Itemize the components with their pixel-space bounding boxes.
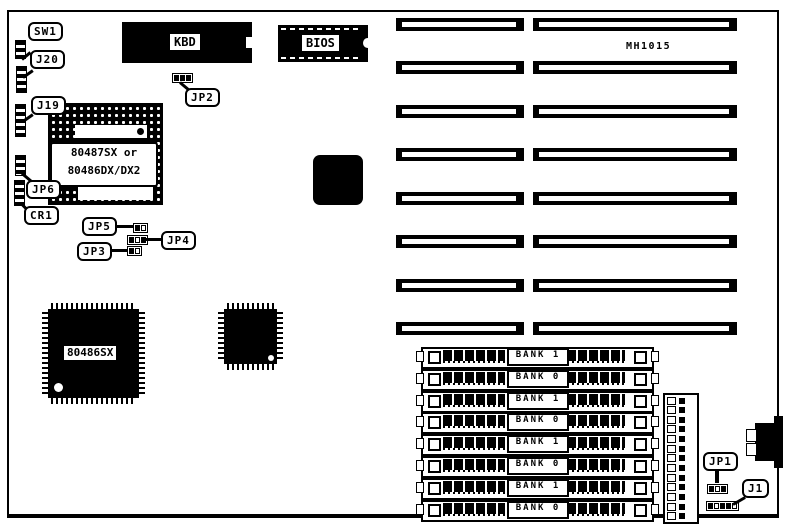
label-j19: J19 xyxy=(31,96,66,115)
pin-hole xyxy=(667,454,676,462)
pin xyxy=(679,513,685,519)
power-tab-1 xyxy=(746,429,757,442)
pin-hole xyxy=(667,445,676,453)
simm-chips-left xyxy=(443,459,505,470)
pin-hole xyxy=(667,483,676,491)
chipset-qfp-chip xyxy=(218,303,283,370)
bios-chip: BIOS xyxy=(278,25,368,62)
simm-bank-label: BANK 0 xyxy=(507,370,569,388)
isa-slot xyxy=(396,148,524,161)
simm-clip-right xyxy=(634,373,647,386)
pin-header-row xyxy=(667,397,695,404)
simm-chips-left xyxy=(443,394,505,405)
bios-pin-row-bottom xyxy=(281,57,362,59)
isa-slot xyxy=(396,322,524,335)
simm-tab-left xyxy=(416,351,424,362)
simm-socket: BANK 1 xyxy=(421,347,654,369)
pin-header-row xyxy=(667,416,695,423)
pin-header-row xyxy=(667,465,695,472)
pin xyxy=(679,426,685,432)
bios-pin-row-top xyxy=(281,28,362,30)
jp1-pointer xyxy=(715,469,719,483)
isa-slot xyxy=(533,148,737,161)
simm-clip-left xyxy=(428,482,441,495)
label-jp4: JP4 xyxy=(161,231,196,250)
simm-clip-left xyxy=(428,416,441,429)
isa-slot xyxy=(533,235,737,248)
simm-chips-right xyxy=(567,415,625,426)
isa-slot-opening xyxy=(402,65,516,70)
simm-clip-right xyxy=(634,482,647,495)
pin-hole xyxy=(667,512,676,520)
isa-slot-column-left xyxy=(396,0,524,345)
plcc-chip xyxy=(313,155,363,205)
pin-hole xyxy=(667,435,676,443)
simm-bank-label: BANK 1 xyxy=(507,435,569,453)
simm-clip-right xyxy=(634,504,647,517)
feature-pin-header xyxy=(663,393,699,524)
simm-chips-left xyxy=(443,350,505,361)
power-connector-flange xyxy=(774,416,783,468)
isa-slot-opening xyxy=(539,196,729,201)
bios-chip-notch xyxy=(363,38,372,48)
simm-tab-right xyxy=(651,416,659,427)
isa-slot-opening xyxy=(402,22,516,27)
simm-bank-label: BANK 1 xyxy=(507,479,569,497)
socket-label-line1: 80487SX or xyxy=(52,144,156,162)
simm-clip-left xyxy=(428,438,441,451)
simm-bank-label: BANK 0 xyxy=(507,457,569,475)
label-j20: J20 xyxy=(30,50,65,69)
simm-tab-right xyxy=(651,373,659,384)
kbd-chip-notch xyxy=(246,37,252,48)
isa-slot xyxy=(396,192,524,205)
isa-slot-opening xyxy=(402,283,516,288)
pin xyxy=(679,475,685,481)
kbd-chip-label: KBD xyxy=(170,34,200,50)
simm-socket: BANK 1 xyxy=(421,391,654,413)
simm-socket: BANK 0 xyxy=(421,500,654,522)
jp3-pointer xyxy=(111,249,127,252)
pin-header-row xyxy=(667,503,695,510)
simm-chips-right xyxy=(567,459,625,470)
isa-slot-opening xyxy=(402,239,516,244)
simm-socket: BANK 0 xyxy=(421,369,654,391)
simm-clip-right xyxy=(634,438,647,451)
simm-tab-left xyxy=(416,504,424,515)
coprocessor-socket-label: 80487SX or 80486DX/DX2 xyxy=(50,142,158,187)
pin xyxy=(679,504,685,510)
pin xyxy=(679,465,685,471)
isa-slot-opening xyxy=(539,283,729,288)
isa-slot xyxy=(533,105,737,118)
isa-slot xyxy=(396,279,524,292)
isa-slot-opening xyxy=(539,65,729,70)
simm-chips-right xyxy=(567,503,625,514)
pin-header-row xyxy=(667,513,695,520)
simm-socket: BANK 1 xyxy=(421,478,654,500)
isa-slot xyxy=(533,322,737,335)
pin-header-row xyxy=(667,455,695,462)
simm-bank-label: BANK 1 xyxy=(507,348,569,366)
pga-key-slot-bottom xyxy=(78,187,153,200)
simm-clip-left xyxy=(428,373,441,386)
pin-header-row xyxy=(667,494,695,501)
simm-tab-right xyxy=(651,438,659,449)
pin xyxy=(679,494,685,500)
cpu-pins-bottom xyxy=(51,397,136,404)
simm-chips-right xyxy=(567,394,625,405)
isa-slot-opening xyxy=(402,109,516,114)
simm-chips-right xyxy=(567,481,625,492)
simm-clip-right xyxy=(634,416,647,429)
pin-header-row xyxy=(667,484,695,491)
simm-tab-right xyxy=(651,460,659,471)
simm-tab-left xyxy=(416,373,424,384)
simm-tab-left xyxy=(416,395,424,406)
label-jp3: JP3 xyxy=(77,242,112,261)
cpu-pin1-dot xyxy=(54,383,63,392)
simm-clip-left xyxy=(428,504,441,517)
pin-header-row xyxy=(667,474,695,481)
isa-slot xyxy=(396,61,524,74)
isa-slot-opening xyxy=(539,22,729,27)
j20-connector xyxy=(16,66,27,93)
simm-socket: BANK 0 xyxy=(421,456,654,478)
isa-slot-opening xyxy=(539,326,729,331)
label-jp2: JP2 xyxy=(185,88,220,107)
isa-slot-opening xyxy=(539,152,729,157)
pin xyxy=(679,417,685,423)
simm-clip-left xyxy=(428,460,441,473)
isa-slot xyxy=(533,61,737,74)
simm-clip-left xyxy=(428,395,441,408)
simm-tab-right xyxy=(651,482,659,493)
simm-tab-left xyxy=(416,460,424,471)
simm-tab-right xyxy=(651,351,659,362)
pin-header-row xyxy=(667,426,695,433)
jp2-jumper xyxy=(172,73,193,83)
label-j1: J1 xyxy=(742,479,769,498)
simm-tab-left xyxy=(416,416,424,427)
pga-pin1-dot xyxy=(137,128,144,135)
coprocessor-socket: 80487SX or 80486DX/DX2 xyxy=(48,103,163,205)
jp4-pointer xyxy=(146,238,161,241)
isa-slot-opening xyxy=(539,109,729,114)
pin-hole xyxy=(667,464,676,472)
simm-chips-left xyxy=(443,372,505,383)
simm-bank-label: BANK 1 xyxy=(507,392,569,410)
simm-chips-left xyxy=(443,437,505,448)
chipset-pins-bottom xyxy=(227,363,274,370)
simm-clip-left xyxy=(428,351,441,364)
simm-tab-left xyxy=(416,482,424,493)
simm-bank-label: BANK 0 xyxy=(507,413,569,431)
pin-hole xyxy=(667,397,676,405)
label-jp5: JP5 xyxy=(82,217,117,236)
simm-chips-left xyxy=(443,503,505,514)
isa-slot xyxy=(533,279,737,292)
simm-chips-left xyxy=(443,415,505,426)
pin-hole xyxy=(667,493,676,501)
simm-tab-left xyxy=(416,438,424,449)
pin xyxy=(679,436,685,442)
socket-label-line2: 80486DX/DX2 xyxy=(52,162,156,180)
simm-tab-right xyxy=(651,504,659,515)
isa-slot xyxy=(533,192,737,205)
power-tab-2 xyxy=(746,443,757,456)
pin-hole xyxy=(667,416,676,424)
isa-slot-opening xyxy=(402,326,516,331)
isa-slot xyxy=(533,18,737,31)
label-cr1: CR1 xyxy=(24,206,59,225)
jp3-jumper xyxy=(127,246,142,256)
isa-slot xyxy=(396,235,524,248)
isa-slot xyxy=(396,18,524,31)
keyboard-controller-chip: KBD xyxy=(122,22,252,63)
motherboard-diagram: SW1 J20 J19 JP6 CR1 JP5 JP4 JP3 JP2 JP1 … xyxy=(0,0,791,527)
pin xyxy=(679,484,685,490)
jp4-jumper xyxy=(127,235,148,245)
pin xyxy=(679,398,685,404)
simm-chips-right xyxy=(567,350,625,361)
label-jp1: JP1 xyxy=(703,452,738,471)
simm-tab-right xyxy=(651,395,659,406)
simm-socket: BANK 0 xyxy=(421,412,654,434)
pin-hole xyxy=(667,474,676,482)
simm-clip-right xyxy=(634,460,647,473)
cpu-80486sx-chip: 80486SX xyxy=(42,303,145,404)
pin-header-row xyxy=(667,445,695,452)
pga-key-slot-top xyxy=(75,125,147,138)
simm-clip-right xyxy=(634,395,647,408)
cr1-connector xyxy=(14,180,25,206)
simm-chips-right xyxy=(567,372,625,383)
label-sw1: SW1 xyxy=(28,22,63,41)
simm-socket-block: BANK 1 BANK 0 BANK 1 BANK 0 xyxy=(421,347,650,518)
simm-chips-right xyxy=(567,437,625,448)
label-jp6: JP6 xyxy=(26,180,61,199)
isa-slot-opening xyxy=(539,239,729,244)
pin xyxy=(679,446,685,452)
cpu-label: 80486SX xyxy=(63,345,117,361)
chipset-pin1-dot xyxy=(268,355,274,361)
simm-socket: BANK 1 xyxy=(421,434,654,456)
jp5-jumper xyxy=(133,223,148,233)
simm-clip-right xyxy=(634,351,647,364)
bios-chip-label: BIOS xyxy=(302,35,339,51)
pin xyxy=(679,407,685,413)
cpu-pins-right xyxy=(138,312,145,395)
pin xyxy=(679,455,685,461)
pin-header-row xyxy=(667,407,695,414)
pin-header-row xyxy=(667,436,695,443)
pin-hole xyxy=(667,503,676,511)
pin-hole xyxy=(667,406,676,414)
chipset-pins-right xyxy=(276,312,283,361)
pin-hole xyxy=(667,425,676,433)
board-id-text: MH1015 xyxy=(626,41,671,52)
jp1-jumper xyxy=(707,484,728,494)
isa-slot-opening xyxy=(402,196,516,201)
isa-slot-opening xyxy=(402,152,516,157)
simm-bank-label: BANK 0 xyxy=(507,501,569,519)
simm-chips-left xyxy=(443,481,505,492)
isa-slot xyxy=(396,105,524,118)
